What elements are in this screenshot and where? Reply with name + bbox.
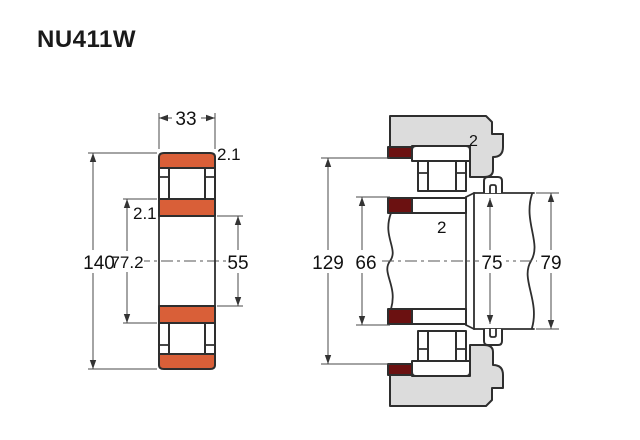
cage-right-top xyxy=(456,161,466,191)
abutment-block xyxy=(388,147,412,158)
dim-housing-abutment: 129 xyxy=(312,253,344,274)
page-title: NU411W xyxy=(37,26,136,54)
section-view: 33 140 77.2 55 2.1 2 xyxy=(82,107,251,369)
cage-right-bottom xyxy=(456,331,466,361)
dim-outer-chamfer: 2.1 xyxy=(217,145,241,164)
outer-ring-top xyxy=(412,146,470,161)
roller-bottom xyxy=(428,331,456,361)
abutment-block xyxy=(388,364,412,375)
bearing-drawing-page: NU411W xyxy=(0,0,640,440)
cage-left-top xyxy=(418,161,428,191)
outer-ring-bottom xyxy=(159,354,215,369)
inner-ring-bottom xyxy=(159,306,215,323)
dim-bore-diameter: 55 xyxy=(227,253,248,274)
abutment-block xyxy=(388,198,412,213)
inner-ring-bottom xyxy=(412,309,466,324)
roller-top xyxy=(428,161,456,191)
cage-right-bottom xyxy=(205,323,215,354)
cage-left-bottom xyxy=(418,331,428,361)
roller-bottom xyxy=(169,323,205,354)
dim-raceway-diameter: 77.2 xyxy=(110,253,143,272)
roller-top xyxy=(169,168,205,199)
cage-left-bottom xyxy=(159,323,169,354)
dim-shaft-abutment: 66 xyxy=(355,253,376,274)
mounting-view: 129 66 75 79 2 2 xyxy=(306,116,566,406)
dim-width: 33 xyxy=(175,109,196,130)
inner-ring-top xyxy=(412,198,466,213)
dim-right-abutment: 75 xyxy=(481,253,502,274)
cage-right-top xyxy=(205,168,215,199)
inner-ring-top xyxy=(159,199,215,216)
abutment-block xyxy=(388,309,412,324)
outer-ring-top xyxy=(159,153,215,168)
collar-chamfer xyxy=(466,325,474,329)
dim-inner-ring-chamfer: 2 xyxy=(437,218,446,237)
collar-chamfer xyxy=(466,193,474,197)
dim-inner-chamfer: 2.1 xyxy=(133,204,157,223)
dim-shaft-diameter: 79 xyxy=(540,253,561,274)
cage-left-top xyxy=(159,168,169,199)
technical-drawing: 33 140 77.2 55 2.1 2 xyxy=(0,0,640,440)
outer-ring-bottom xyxy=(412,361,470,376)
dim-outer-ring-chamfer: 2 xyxy=(469,133,478,150)
